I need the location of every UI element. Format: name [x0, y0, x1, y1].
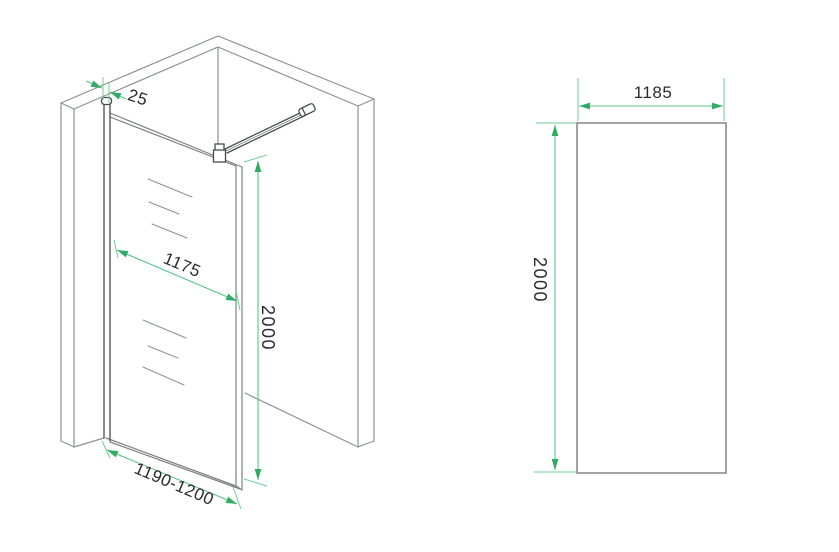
- dimension-height-iso: 2000: [244, 155, 278, 486]
- bar-upper-line: [225, 112, 302, 149]
- wall-top-inner-edge: [74, 47, 358, 109]
- left-wall-bottom-face-edge: [61, 441, 74, 447]
- left-wall-top-face-edge: [61, 103, 74, 109]
- dimension-glass-width: 1175: [114, 240, 240, 310]
- extension-line: [244, 155, 267, 162]
- dimension-label-profile-width: 25: [125, 85, 150, 109]
- back-wall-floor-line: [245, 393, 358, 447]
- dimension-leader: [86, 81, 102, 88]
- left-wall-floor-line: [74, 438, 104, 447]
- dimension-front-width: 1185: [578, 78, 724, 121]
- dimension-adjustment-range: 1190-1200: [102, 441, 241, 509]
- front-view: 1185 2000: [530, 78, 726, 473]
- extension-line: [114, 240, 118, 258]
- dimension-front-height: 2000: [530, 123, 576, 472]
- reflection-line: [149, 202, 179, 214]
- glass-panel: [106, 113, 242, 490]
- glass-clamp-body: [214, 150, 226, 162]
- wall-bracket: [298, 103, 316, 117]
- reflection-line: [148, 179, 192, 197]
- dimension-label-front-width: 1185: [634, 83, 673, 102]
- isometric-view: 25 1175 2000 1190-1200: [61, 36, 374, 509]
- dimension-profile-width: 25: [86, 77, 150, 110]
- glass-reflection-marks: [143, 179, 192, 385]
- reflection-line: [143, 320, 186, 338]
- dimension-leader: [110, 92, 126, 99]
- reflection-line: [152, 224, 187, 238]
- wall-profile: [102, 98, 112, 442]
- extension-line: [233, 487, 241, 509]
- reflection-line: [148, 346, 178, 358]
- reflection-line: [143, 367, 184, 385]
- bar-center-line: [226, 114, 303, 151]
- back-wall-bottom-face-edge: [358, 441, 374, 447]
- glass-panel-outline: [577, 123, 726, 473]
- extension-line: [244, 479, 267, 486]
- wall-bracket-cap: [298, 103, 316, 117]
- back-wall-top-face-edge: [358, 99, 374, 106]
- stabilizer-bar: [214, 103, 316, 162]
- shower-screen-dimension-drawing: 25 1175 2000 1190-1200: [0, 0, 839, 552]
- dimension-label-glass-width: 1175: [161, 249, 204, 282]
- dimension-label-adjustment-range: 1190-1200: [132, 459, 217, 510]
- bar-lower-line: [227, 116, 304, 153]
- technical-drawing-canvas: 25 1175 2000 1190-1200: [0, 0, 839, 552]
- extension-line: [102, 441, 110, 458]
- dimension-label-front-height: 2000: [530, 257, 550, 303]
- dimension-label-height: 2000: [258, 305, 278, 351]
